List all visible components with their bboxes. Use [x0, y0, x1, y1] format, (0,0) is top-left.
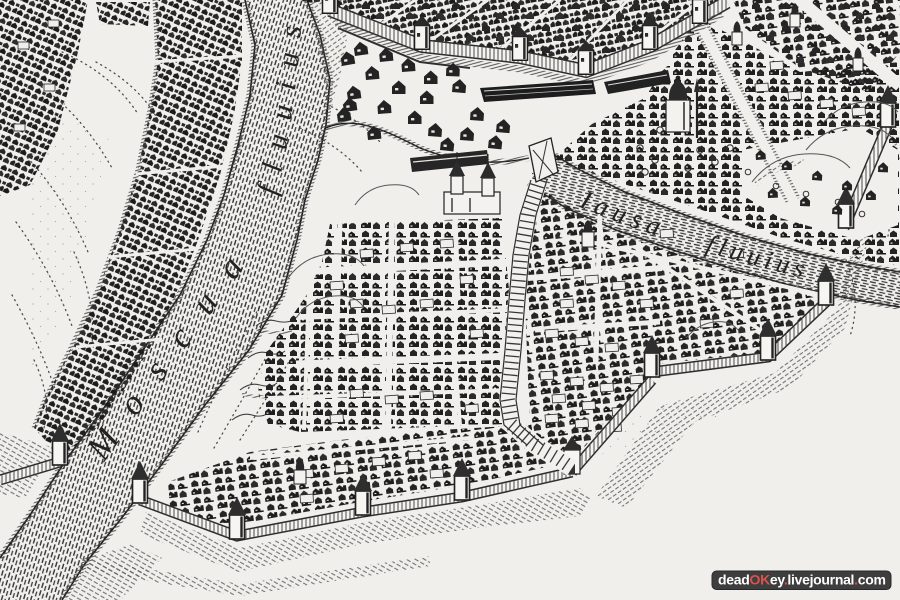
svg-text:deadOKey.livejournal.com: deadOKey.livejournal.com [718, 572, 886, 588]
